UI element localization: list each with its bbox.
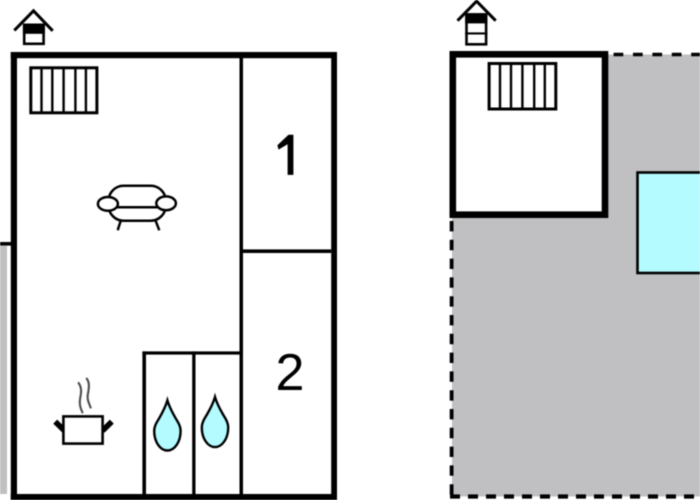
svg-text:2: 2: [276, 344, 305, 402]
